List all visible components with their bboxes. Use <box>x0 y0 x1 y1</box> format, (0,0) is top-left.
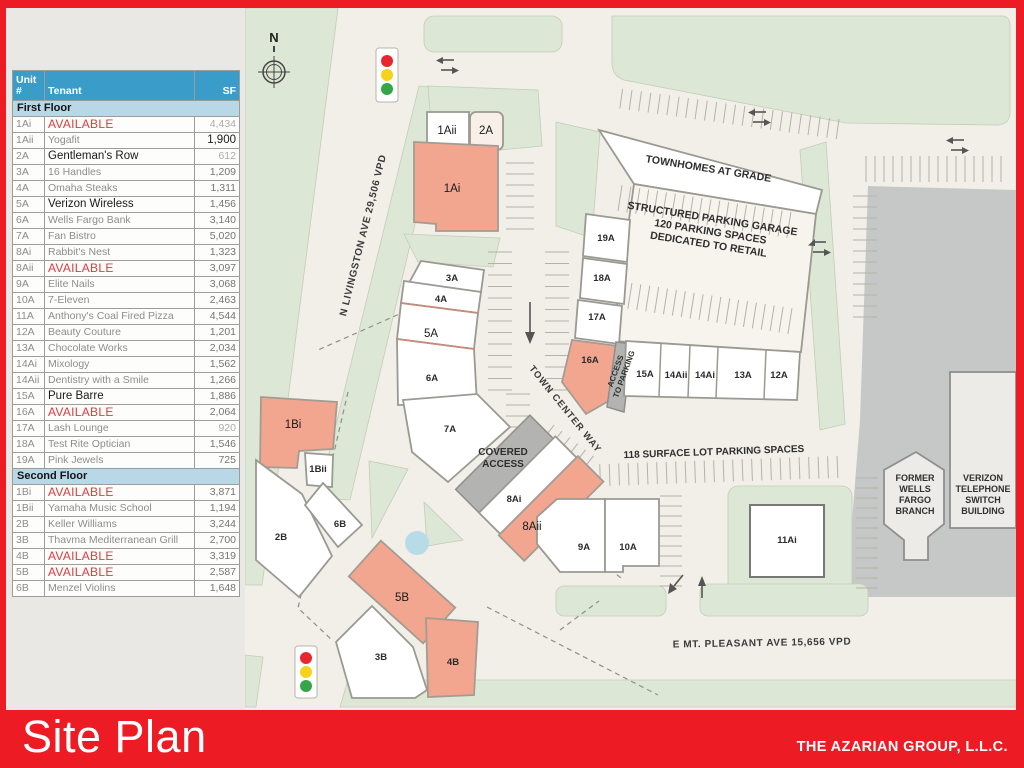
unit-cell: 17A <box>13 421 45 437</box>
tenant-cell: Pure Barre <box>45 389 195 405</box>
sf-cell: 2,064 <box>195 405 240 421</box>
tenant-cell: Rabbit's Nest <box>45 245 195 261</box>
unit-cell: 7A <box>13 229 45 245</box>
unit-cell: 5B <box>13 565 45 581</box>
table-row: 5BAVAILABLE2,587 <box>13 565 240 581</box>
sf-cell: 2,463 <box>195 293 240 309</box>
unit-cell: 1Aii <box>13 133 45 149</box>
sf-cell: 3,319 <box>195 549 240 565</box>
label-unit-17A: 17A <box>588 312 606 323</box>
label-unit-5B: 5B <box>395 592 409 604</box>
sf-cell: 4,434 <box>195 117 240 133</box>
sf-cell: 1,900 <box>195 133 240 149</box>
label-unit-1Bi: 1Bi <box>285 419 302 431</box>
sf-cell: 4,544 <box>195 309 240 325</box>
label-unit-14Ai: 14Ai <box>695 370 715 381</box>
sf-cell: 3,097 <box>195 261 240 277</box>
sf-cell: 2,034 <box>195 341 240 357</box>
label-unit-18A: 18A <box>593 273 611 284</box>
table-row: 1AiAVAILABLE4,434 <box>13 117 240 133</box>
sf-cell: 1,209 <box>195 165 240 181</box>
table-row: 11AAnthony's Coal Fired Pizza4,544 <box>13 309 240 325</box>
table-row: 13AChocolate Works2,034 <box>13 341 240 357</box>
label-unit-4B: 4B <box>447 657 459 668</box>
unit-header: Unit # <box>13 71 45 101</box>
tenant-cell: Mixology <box>45 357 195 373</box>
label-unit-4A: 4A <box>435 294 447 305</box>
tenant-cell: AVAILABLE <box>45 485 195 501</box>
compass-n-label: N <box>269 30 278 45</box>
table-row: 2BKeller Williams3,244 <box>13 517 240 533</box>
table-row: 3BThavma Mediterranean Grill2,700 <box>13 533 240 549</box>
table-row: 9AElite Nails3,068 <box>13 277 240 293</box>
table-header-row: Unit # Tenant SF <box>13 71 240 101</box>
site-plan-slide: { "footer": { "title": "Site Plan", "com… <box>0 0 1024 768</box>
unit-cell: 2A <box>13 149 45 165</box>
sf-cell: 2,587 <box>195 565 240 581</box>
unit-cell: 18A <box>13 437 45 453</box>
unit-cell: 19A <box>13 453 45 469</box>
traffic-light-south <box>295 646 317 698</box>
label-unit-5A: 5A <box>424 328 438 340</box>
label-unit-1Aii: 1Aii <box>437 125 456 137</box>
tenant-cell: Yamaha Music School <box>45 501 195 517</box>
tenant-cell: Elite Nails <box>45 277 195 293</box>
tenant-cell: Fan Bistro <box>45 229 195 245</box>
table-row: 7AFan Bistro5,020 <box>13 229 240 245</box>
unit-cell: 6A <box>13 213 45 229</box>
unit-cell: 3B <box>13 533 45 549</box>
table-row: 19APink Jewels725 <box>13 453 240 469</box>
label-unit-7A: 7A <box>444 424 456 435</box>
label-unit-14Aii: 14Aii <box>665 370 688 381</box>
sf-cell: 1,201 <box>195 325 240 341</box>
tenant-cell: Gentleman's Row <box>45 149 195 165</box>
table-row: 3A16 Handles1,209 <box>13 165 240 181</box>
table-row: 5AVerizon Wireless1,456 <box>13 197 240 213</box>
tenant-cell: Verizon Wireless <box>45 197 195 213</box>
label-unit-10A: 10A <box>619 542 637 553</box>
tenant-cell: AVAILABLE <box>45 117 195 133</box>
sf-cell: 1,546 <box>195 437 240 453</box>
tenant-table: Unit # Tenant SF First Floor1AiAVAILABLE… <box>12 70 240 597</box>
table-row: 4AOmaha Steaks1,311 <box>13 181 240 197</box>
site-plan-map: NN LIVINGSTON AVE 29,506 VPDTOWN CENTER … <box>245 8 1016 710</box>
sf-cell: 3,244 <box>195 517 240 533</box>
table-row: 12ABeauty Couture1,201 <box>13 325 240 341</box>
table-row: 18ATest Rite Optician1,546 <box>13 437 240 453</box>
unit-cell: 5A <box>13 197 45 213</box>
map-canvas: NN LIVINGSTON AVE 29,506 VPDTOWN CENTER … <box>245 8 1016 710</box>
tenant-table-panel: Unit # Tenant SF First Floor1AiAVAILABLE… <box>12 70 240 597</box>
table-row: 14AiiDentistry with a Smile1,266 <box>13 373 240 389</box>
unit-cell: 1Bii <box>13 501 45 517</box>
table-row: 15APure Barre1,886 <box>13 389 240 405</box>
label-unit-3B: 3B <box>375 652 387 663</box>
tenant-cell: Chocolate Works <box>45 341 195 357</box>
unit-cell: 3A <box>13 165 45 181</box>
unit-cell: 4B <box>13 549 45 565</box>
label-unit-6B: 6B <box>334 519 346 530</box>
tenant-cell: Yogafit <box>45 133 195 149</box>
tenant-cell: Beauty Couture <box>45 325 195 341</box>
label-unit-11Ai: 11Ai <box>777 535 797 546</box>
sf-cell: 1,266 <box>195 373 240 389</box>
unit-cell: 1Bi <box>13 485 45 501</box>
slide-body: Unit # Tenant SF First Floor1AiAVAILABLE… <box>6 8 1016 710</box>
table-row: 6AWells Fargo Bank3,140 <box>13 213 240 229</box>
sf-cell: 1,194 <box>195 501 240 517</box>
note-covered-access: COVEREDACCESS <box>478 447 527 470</box>
tenant-cell: AVAILABLE <box>45 565 195 581</box>
table-row: 4BAVAILABLE3,319 <box>13 549 240 565</box>
table-row: 6BMenzel Violins1,648 <box>13 581 240 597</box>
tenant-cell: Thavma Mediterranean Grill <box>45 533 195 549</box>
tenant-header: Tenant <box>45 71 195 101</box>
label-unit-3A: 3A <box>446 273 458 284</box>
footer-bar: Site Plan THE AZARIAN GROUP, L.L.C. <box>0 710 1024 768</box>
unit-cell: 2B <box>13 517 45 533</box>
sf-cell: 1,648 <box>195 581 240 597</box>
unit-cell: 15A <box>13 389 45 405</box>
sf-header: SF <box>195 71 240 101</box>
section-label: First Floor <box>13 101 240 117</box>
sf-cell: 920 <box>195 421 240 437</box>
table-row: 8AiiAVAILABLE3,097 <box>13 261 240 277</box>
tenant-cell: Dentistry with a Smile <box>45 373 195 389</box>
sf-cell: 3,068 <box>195 277 240 293</box>
tenant-cell: Lash Lounge <box>45 421 195 437</box>
section-label: Second Floor <box>13 469 240 485</box>
tenant-cell: Anthony's Coal Fired Pizza <box>45 309 195 325</box>
unit-cell: 14Aii <box>13 373 45 389</box>
sf-cell: 612 <box>195 149 240 165</box>
table-row: 2AGentleman's Row612 <box>13 149 240 165</box>
sf-cell: 2,700 <box>195 533 240 549</box>
label-unit-1Ai: 1Ai <box>444 183 461 195</box>
tenant-cell: Omaha Steaks <box>45 181 195 197</box>
table-row: 1BiiYamaha Music School1,194 <box>13 501 240 517</box>
label-unit-15A: 15A <box>636 369 654 380</box>
unit-cell: 1Ai <box>13 117 45 133</box>
sf-cell: 3,871 <box>195 485 240 501</box>
unit-cell: 9A <box>13 277 45 293</box>
label-unit-19A: 19A <box>597 233 615 244</box>
adjacent-property <box>846 186 1016 597</box>
sf-cell: 1,456 <box>195 197 240 213</box>
unit-cell: 14Ai <box>13 357 45 373</box>
label-unit-6A: 6A <box>426 373 438 384</box>
tenant-cell: Pink Jewels <box>45 453 195 469</box>
tenant-cell: AVAILABLE <box>45 405 195 421</box>
section-row: Second Floor <box>13 469 240 485</box>
label-unit-8Aii: 8Aii <box>522 521 541 533</box>
sf-cell: 725 <box>195 453 240 469</box>
tenant-cell: Wells Fargo Bank <box>45 213 195 229</box>
note-former-wells-fargo: FORMERWELLSFARGOBRANCH <box>896 473 935 516</box>
label-unit-8Ai: 8Ai <box>507 494 522 505</box>
tenant-cell: 7-Eleven <box>45 293 195 309</box>
unit-cell: 16A <box>13 405 45 421</box>
tenant-cell: Test Rite Optician <box>45 437 195 453</box>
sf-cell: 5,020 <box>195 229 240 245</box>
label-unit-13A: 13A <box>734 370 752 381</box>
tenant-cell: Menzel Violins <box>45 581 195 597</box>
sf-cell: 1,311 <box>195 181 240 197</box>
table-row: 17ALash Lounge920 <box>13 421 240 437</box>
table-row: 8AiRabbit's Nest1,323 <box>13 245 240 261</box>
fountain <box>405 531 429 555</box>
section-row: First Floor <box>13 101 240 117</box>
table-row: 14AiMixology1,562 <box>13 357 240 373</box>
building-10A <box>605 499 659 572</box>
unit-cell: 4A <box>13 181 45 197</box>
table-row: 1BiAVAILABLE3,871 <box>13 485 240 501</box>
sf-cell: 1,562 <box>195 357 240 373</box>
label-unit-1Bii: 1Bii <box>309 464 326 475</box>
unit-cell: 8Ai <box>13 245 45 261</box>
unit-cell: 11A <box>13 309 45 325</box>
label-unit-9A: 9A <box>578 542 590 553</box>
tenant-cell: AVAILABLE <box>45 549 195 565</box>
tenant-cell: 16 Handles <box>45 165 195 181</box>
table-row: 10A7-Eleven2,463 <box>13 293 240 309</box>
label-unit-12A: 12A <box>770 370 788 381</box>
table-row: 1AiiYogafit1,900 <box>13 133 240 149</box>
company-name: THE AZARIAN GROUP, L.L.C. <box>797 739 1008 755</box>
sf-cell: 3,140 <box>195 213 240 229</box>
table-row: 16AAVAILABLE2,064 <box>13 405 240 421</box>
unit-cell: 6B <box>13 581 45 597</box>
unit-cell: 8Aii <box>13 261 45 277</box>
label-unit-16A: 16A <box>581 355 599 366</box>
sf-cell: 1,886 <box>195 389 240 405</box>
label-unit-2B: 2B <box>275 532 287 543</box>
label-unit-2A: 2A <box>479 125 493 137</box>
unit-cell: 10A <box>13 293 45 309</box>
traffic-light-north <box>376 48 398 102</box>
tenant-cell: Keller Williams <box>45 517 195 533</box>
sf-cell: 1,323 <box>195 245 240 261</box>
tenant-cell: AVAILABLE <box>45 261 195 277</box>
page-title: Site Plan <box>22 711 207 763</box>
unit-cell: 13A <box>13 341 45 357</box>
unit-cell: 12A <box>13 325 45 341</box>
